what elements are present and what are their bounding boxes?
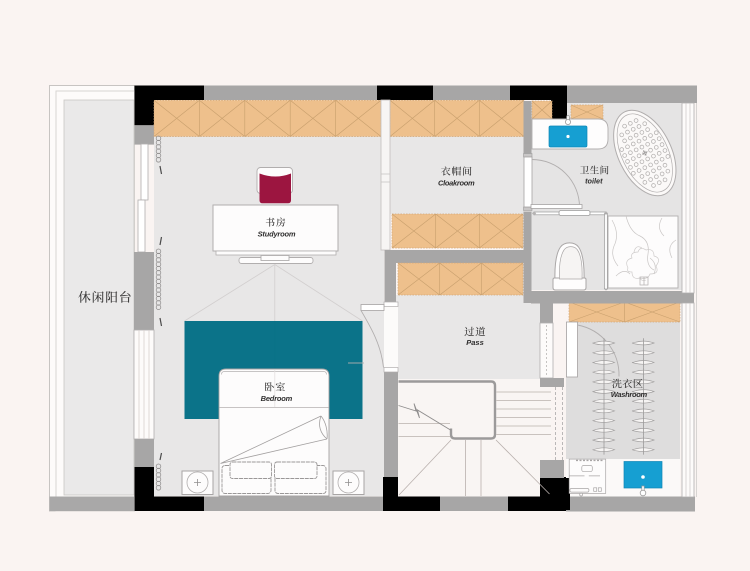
svg-text:toilet: toilet bbox=[585, 176, 603, 185]
svg-text:Studyroom: Studyroom bbox=[258, 230, 296, 239]
svg-text:Washroom: Washroom bbox=[611, 390, 648, 399]
svg-text:Cloakroom: Cloakroom bbox=[438, 178, 475, 187]
svg-text:Bedroom: Bedroom bbox=[261, 394, 293, 403]
svg-text:Pass: Pass bbox=[466, 338, 484, 347]
